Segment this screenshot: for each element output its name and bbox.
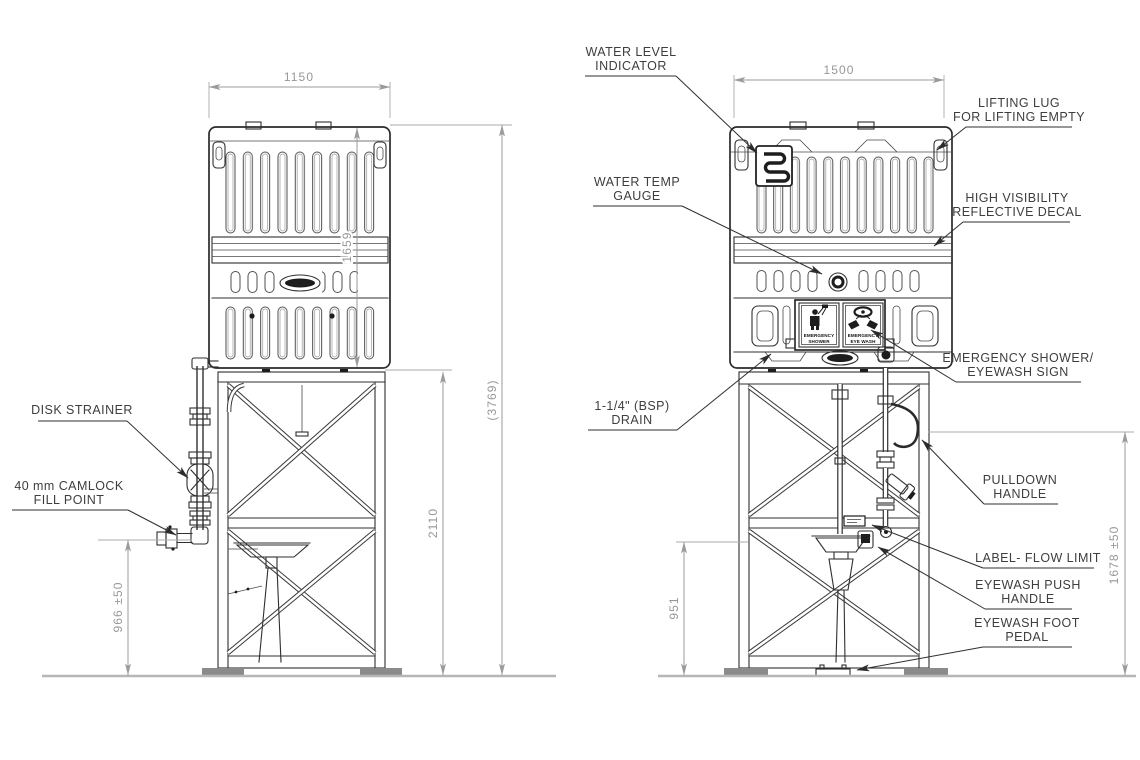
dim-bowl-height: 951 [667, 596, 681, 619]
pipe-union-lower [877, 498, 894, 510]
label-decal-line2: REFLECTIVE DECAL [952, 205, 1081, 219]
dim-fill-point-height: 966 ±50 [111, 582, 125, 633]
tank-ribs-upper [222, 150, 378, 235]
label-pulldown-line1: PULLDOWN [983, 473, 1057, 487]
cross-brace-lower [749, 531, 919, 653]
dim-width-right: 1500 [823, 63, 854, 77]
label-water-level-line1: WATER LEVEL [585, 45, 676, 59]
tank-handle-right [912, 306, 938, 346]
label-decal-line1: HIGH VISIBILITY [965, 191, 1069, 205]
right-front-view: EMERGENCY SHOWER EMERGENCY EYE [585, 45, 1136, 676]
water-temp-gauge [829, 273, 847, 291]
sign-shower-text-1: EMERGENCY [804, 333, 835, 338]
sign-eyewash-text-2: EYE WASH [850, 339, 876, 344]
dim-width-left: 1150 [284, 70, 314, 84]
flow-limit-plate [844, 516, 865, 526]
tank-shower-drawing: 1150 1659 2110 (3769) 966 ±50 DISK STRAI… [0, 0, 1140, 760]
left-side-view: 1150 1659 2110 (3769) 966 ±50 DISK STRAI… [12, 70, 556, 676]
label-push-line2: HANDLE [1001, 592, 1054, 606]
label-disk-strainer: DISK STRAINER [31, 403, 133, 417]
reflective-band [734, 237, 952, 263]
label-flow-limit: LABEL- FLOW LIMIT [975, 551, 1101, 565]
label-water-temp-line2: GAUGE [613, 189, 660, 203]
tank-ribs-lower [222, 305, 378, 363]
label-sign-line2: EYEWASH SIGN [967, 365, 1068, 379]
tank-ribs-mid-left [753, 269, 821, 293]
label-drain-line2: DRAIN [611, 413, 652, 427]
dim-tank-height: 1659 [340, 231, 354, 262]
reflective-band [212, 237, 388, 263]
cross-brace-upper [228, 385, 375, 515]
label-pedal-line1: EYEWASH FOOT [974, 616, 1080, 630]
tank-ribs-mid-left [227, 270, 278, 294]
tank-side [209, 122, 390, 368]
label-sign-line1: EMERGENCY SHOWER/ [942, 351, 1093, 365]
lifting-lug-left [735, 140, 748, 170]
label-lifting-lug-line1: LIFTING LUG [978, 96, 1060, 110]
pipe-union-upper [877, 451, 894, 468]
label-water-level-line2: INDICATOR [595, 59, 667, 73]
drawing-canvas: 1150 1659 2110 (3769) 966 ±50 DISK STRAI… [0, 0, 1140, 760]
brand-badge [280, 275, 320, 291]
tank-handle-left [752, 306, 778, 346]
label-lifting-lug-line2: FOR LIFTING EMPTY [953, 110, 1085, 124]
dim-stand-height: 2110 [426, 508, 440, 538]
label-camlock-line1: 40 mm CAMLOCK [14, 479, 124, 493]
label-water-temp-line1: WATER TEMP [594, 175, 680, 189]
sign-eyewash-text-1: EMERGENCY [848, 333, 879, 338]
label-pedal-line2: PEDAL [1005, 630, 1048, 644]
label-drain-line1: 1-1/4" (BSP) [594, 399, 669, 413]
tank-ribs-mid-right [853, 269, 921, 293]
left-view-labels: DISK STRAINER 40 mm CAMLOCK FILL POINT [12, 403, 188, 535]
label-push-line1: EYEWASH PUSH [975, 578, 1081, 592]
pulldown-handle [891, 404, 918, 447]
brand-badge [822, 351, 858, 365]
label-pulldown-line2: HANDLE [993, 487, 1046, 501]
dim-total-height: (3769) [485, 379, 499, 420]
label-camlock-line2: FILL POINT [34, 493, 105, 507]
dim-handle-height: 1678 ±50 [1107, 526, 1121, 585]
emergency-sign: EMERGENCY SHOWER EMERGENCY EYE [786, 300, 894, 350]
sign-shower-text-2: SHOWER [808, 339, 830, 344]
tank-ribs-mid-right [322, 270, 358, 294]
fill-pipe-assembly [157, 358, 218, 551]
shower-arm-side [229, 385, 308, 436]
eyewash-foot-pedal [816, 665, 850, 676]
water-level-indicator [756, 146, 792, 186]
